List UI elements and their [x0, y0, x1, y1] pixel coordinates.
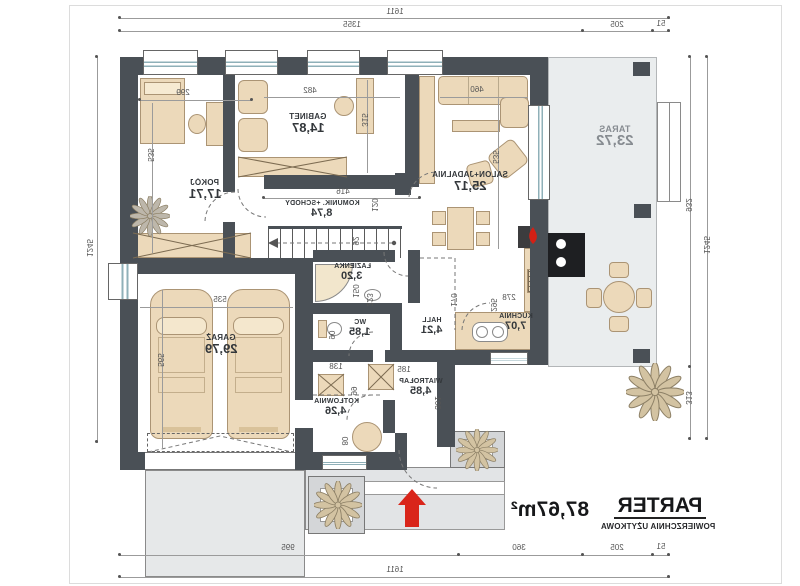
entrance-arrow-head [398, 489, 426, 505]
terrace-chair-top [609, 262, 629, 278]
dim-gabinet-w: 482 [290, 86, 330, 96]
window-north-3 [307, 50, 360, 75]
entrance-arrow-shaft [405, 505, 419, 527]
car-2-rear-window [235, 377, 282, 393]
dim-pokoj-w: 299 [163, 88, 203, 98]
car-1-tail [162, 427, 201, 432]
garage-door-swing [147, 433, 294, 452]
dim-lazienka-b: 223 [364, 283, 374, 317]
car-2-tail [239, 427, 278, 432]
dim-line-left [97, 57, 98, 443]
terrace-table [603, 281, 635, 313]
boiler [352, 422, 382, 452]
wall-bathroom-east [408, 250, 420, 303]
dim-hall-w: 170 [448, 283, 458, 317]
tv-bench [452, 120, 500, 132]
armchair-gabinet-2 [238, 118, 268, 152]
window-kitchen-south [490, 352, 528, 365]
wall-wc-south-a [313, 350, 373, 362]
dining-chair-3 [476, 211, 490, 225]
room-label-gabinet: GABINET14,87 [270, 112, 346, 134]
dim-line-bottom-inner [120, 555, 670, 556]
dining-chair-1 [432, 211, 446, 225]
dim-line-top-inner [120, 31, 670, 32]
driveway [145, 470, 305, 577]
chair-pokoj [188, 114, 206, 134]
dim-line-bottom-outer [120, 577, 670, 578]
wall-garage-north [138, 258, 313, 274]
car-1-rear-window [158, 377, 205, 393]
dim-left-total: 1245 [84, 231, 94, 265]
dim-bot-seg-0: 995 [268, 543, 308, 553]
floorplan-canvas: 1611 1355 205 51 995 360 205 51 1611 124… [0, 0, 800, 586]
dining-table [447, 207, 474, 250]
dim-komunik-d: 120 [369, 188, 379, 222]
room-label-wc: WC1,85 [332, 319, 388, 338]
dim-line-pokoj-v [152, 103, 153, 253]
room-label-lazienka: ŁAZIENKA3,20 [320, 263, 384, 282]
terrace-chair-right [636, 288, 652, 308]
chimney-flue-2 [556, 257, 566, 267]
dim-gabinet-h: 315 [359, 103, 369, 137]
dim-bot-seg-2: 205 [597, 543, 637, 553]
washing-machine [318, 374, 344, 396]
terrace-column-1 [633, 62, 650, 76]
room-label-komunik: KOMUNIK. +SCHODY8,74 [280, 200, 364, 219]
dim-kotlownia-b: 138 [316, 362, 356, 372]
dim-stairs: 92 [350, 224, 360, 258]
dim-salon-h: 535 [490, 140, 500, 174]
dining-chair-4 [476, 232, 490, 246]
terrace-column-3 [633, 349, 650, 363]
dim-boiler: 80 [339, 424, 349, 458]
dim-right-seg-1: 313 [683, 381, 693, 415]
dim-bot-seg-3: 51 [641, 542, 681, 552]
window-north-1 [143, 50, 198, 75]
dim-line-komunik [264, 198, 420, 199]
garage-door-opening [145, 452, 295, 470]
chimney [548, 233, 585, 277]
page-subtitle: POWIERZCHNIA UŻYTKOWA [596, 522, 720, 531]
total-area-value: 87,67m² [502, 498, 598, 522]
dim-salon-sofa: 460 [457, 85, 497, 95]
dim-top-seg-1: 205 [597, 20, 637, 30]
dim-top-total: 1611 [375, 7, 415, 17]
room-label-salon: SALON+JADALNIA25,17 [420, 170, 520, 192]
room-label-wiatrolap: WIATROŁAP4,85 [390, 378, 452, 397]
plant-pokoj-icon [130, 196, 170, 236]
room-label-taras: TARAS23,72 [583, 124, 647, 147]
title-underline [614, 517, 706, 519]
wall-west [120, 57, 138, 452]
dim-bot-total: 1611 [375, 565, 415, 575]
room-label-garaz: GARAŻ29,79 [188, 333, 254, 355]
wall-wc-east [390, 303, 402, 350]
window-north-4 [387, 50, 443, 75]
dim-line-salon [440, 97, 528, 98]
window-north-2 [225, 50, 278, 75]
plant-terrace-icon [626, 363, 684, 421]
chimney-flue-1 [556, 239, 566, 249]
dim-right-total: 1245 [701, 228, 711, 262]
wall-east-lower [530, 200, 548, 365]
dim-line-gabinet [264, 97, 400, 98]
terrace-chair-bottom [609, 316, 629, 332]
dim-bot-seg-1: 360 [499, 543, 539, 553]
dim-garaz-h: 565 [155, 343, 165, 377]
dim-top-seg-0: 1355 [332, 20, 372, 30]
terrace-glass-door [528, 105, 550, 200]
dim-top-seg-2: 51 [641, 19, 681, 29]
wall-east-upper [530, 57, 548, 105]
dining-chair-2 [432, 232, 446, 246]
dim-wiatrolap-a: 185 [384, 365, 424, 375]
wall-entry-jamb-left [395, 433, 407, 470]
plant-planter-right-icon [456, 429, 498, 471]
dim-pokoj-h: 535 [145, 138, 155, 172]
wall-pokoj-east-a [223, 75, 235, 192]
room-label-hall: HALL4,21 [402, 317, 462, 336]
wall-salon-west [405, 57, 419, 187]
terrace-chair-left [586, 288, 602, 308]
window-west-garage [108, 263, 138, 300]
dim-right-seg-0: 932 [683, 188, 693, 222]
page-title: PARTER [612, 494, 708, 518]
wall-wc-south-b [385, 350, 437, 362]
terrace-column-2 [634, 204, 651, 218]
armchair-salon [500, 97, 529, 128]
room-label-kotlownia: KOTŁOWNIA4,26 [302, 398, 370, 417]
terrace-step-2 [669, 102, 681, 202]
room-label-kuchnia: KUCHNIA7,07 [486, 313, 546, 332]
wardrobe-gabinet [238, 157, 347, 177]
plant-planter-left-icon [314, 481, 362, 529]
dim-line-pokoj [140, 100, 252, 101]
cabinet-tall-salon [419, 76, 435, 184]
wall-garage-east-b [295, 428, 313, 470]
room-label-pokoj: POKÓJ17,71 [168, 178, 242, 200]
wall-pokoj-east-b [223, 222, 235, 258]
dim-line-top-outer [120, 18, 670, 19]
dim-garaz-w: 535 [200, 295, 240, 305]
wall-kotlownia-east [383, 400, 395, 433]
wall-garage-east-a [295, 258, 313, 400]
dim-komunik-w: 416 [323, 187, 363, 197]
